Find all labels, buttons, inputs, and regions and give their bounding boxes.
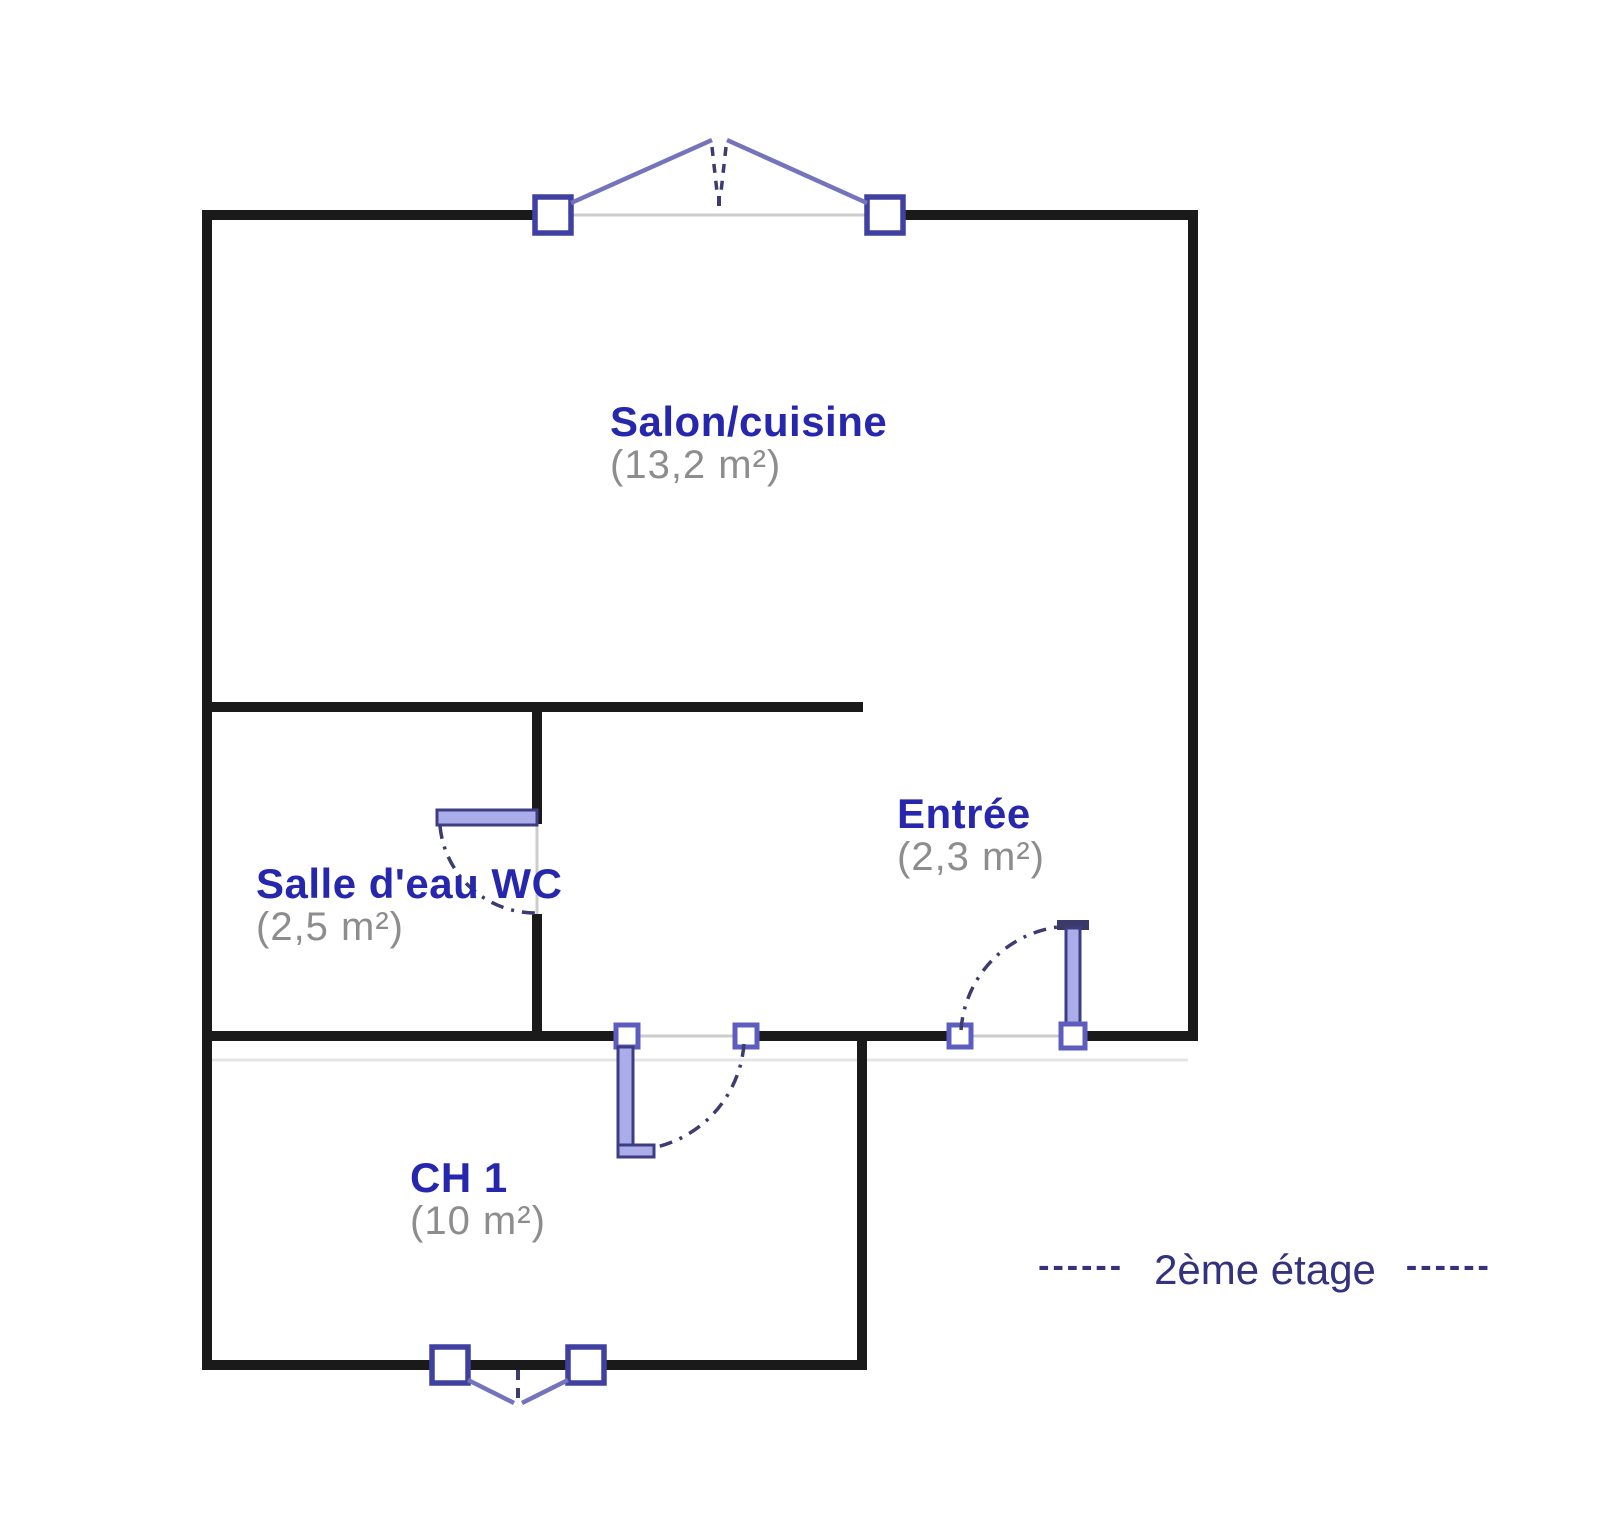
room-name-entree: Entrée: [897, 792, 1045, 836]
bottom-window-right-casement-line: [522, 1380, 568, 1403]
room-area-salon: (13,2 m²): [610, 444, 887, 486]
top-window: [535, 140, 903, 233]
room-label-entree: Entrée (2,3 m²): [897, 792, 1045, 878]
room-area-ch1: (10 m²): [410, 1200, 546, 1242]
room-name-salle-eau: Salle d'eau WC: [256, 862, 562, 906]
entry-door: [949, 920, 1089, 1048]
top-window-left-frame-icon: [535, 197, 571, 233]
room-name-salon: Salon/cuisine: [610, 400, 887, 444]
floor-caption-dashes-left: ------: [1038, 1247, 1124, 1286]
bedroom-door-jamb-icon: [735, 1025, 757, 1047]
bathroom-door-leaf: [437, 810, 537, 825]
bedroom-door-hinge-icon: [616, 1025, 638, 1047]
top-window-left-casement-line: [571, 140, 712, 203]
floor-caption-dashes-right: ------: [1406, 1247, 1492, 1286]
room-area-entree: (2,3 m²): [897, 836, 1045, 878]
room-label-ch1: CH 1 (10 m²): [410, 1156, 546, 1242]
room-label-salon: Salon/cuisine (13,2 m²): [610, 400, 887, 486]
floor-plan-drawing: [0, 0, 1600, 1524]
room-label-salle-eau: Salle d'eau WC (2,5 m²): [256, 862, 562, 948]
bottom-window-left-frame-icon: [432, 1347, 468, 1383]
bedroom-door-leaf-foot: [618, 1145, 654, 1157]
bedroom-door: [616, 1025, 757, 1157]
room-area-salle-eau: (2,5 m²): [256, 906, 562, 948]
top-window-right-casement-line: [727, 140, 867, 203]
top-window-right-frame-icon: [867, 197, 903, 233]
bedroom-door-leaf: [618, 1047, 633, 1147]
floor-plan-page: Salon/cuisine (13,2 m²) Salle d'eau WC (…: [0, 0, 1600, 1524]
bottom-window-right-frame-icon: [568, 1347, 604, 1383]
bottom-window: [432, 1347, 604, 1403]
top-window-center-dash-left: [712, 147, 717, 192]
exterior-wall-top-right: [903, 215, 1193, 1036]
floor-caption-label: 2ème étage: [1154, 1246, 1376, 1294]
entry-door-swing-arc: [961, 926, 1071, 1030]
entry-door-hinge-icon: [1061, 1024, 1085, 1048]
room-name-ch1: CH 1: [410, 1156, 546, 1200]
floor-caption: ------ 2ème étage ------: [1020, 1246, 1510, 1294]
entry-door-leaf: [1066, 928, 1080, 1028]
bottom-window-left-casement-line: [468, 1380, 514, 1403]
top-window-center-dash-right: [721, 147, 726, 192]
